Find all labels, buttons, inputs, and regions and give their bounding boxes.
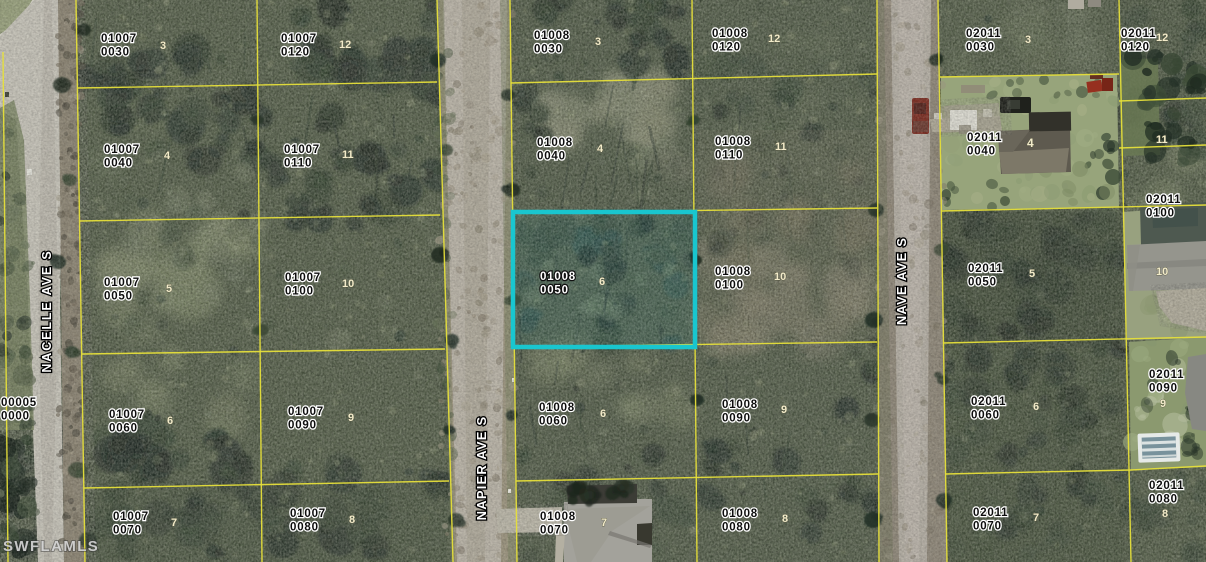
svg-text:9: 9 (781, 404, 787, 416)
svg-text:4: 4 (597, 143, 604, 155)
svg-text:NAPIER AVE S: NAPIER AVE S (474, 416, 489, 521)
svg-text:NACELLE AVE S: NACELLE AVE S (40, 249, 54, 372)
svg-text:11: 11 (342, 149, 354, 161)
svg-text:10: 10 (1156, 266, 1168, 278)
svg-text:6: 6 (600, 408, 606, 420)
svg-text:9: 9 (1160, 398, 1166, 410)
svg-text:11: 11 (1156, 134, 1168, 146)
svg-text:7: 7 (601, 517, 607, 529)
svg-text:6: 6 (599, 276, 605, 288)
svg-text:4: 4 (164, 150, 171, 162)
svg-text:5: 5 (166, 283, 172, 295)
svg-text:6: 6 (167, 415, 173, 427)
svg-text:11: 11 (775, 141, 787, 153)
svg-text:8: 8 (349, 514, 355, 526)
svg-text:8: 8 (782, 513, 788, 525)
svg-text:SWFLAMLS: SWFLAMLS (3, 538, 99, 555)
svg-text:3: 3 (1025, 34, 1031, 46)
svg-text:6: 6 (1033, 401, 1039, 413)
svg-text:12: 12 (339, 39, 351, 51)
svg-text:10: 10 (342, 278, 354, 290)
svg-text:12: 12 (768, 33, 780, 45)
svg-text:3: 3 (595, 36, 601, 48)
svg-text:4: 4 (1027, 136, 1034, 150)
svg-text:5: 5 (1029, 268, 1035, 280)
svg-text:9: 9 (348, 412, 354, 424)
svg-text:3: 3 (160, 40, 166, 52)
svg-text:8: 8 (1162, 508, 1168, 520)
svg-text:7: 7 (171, 517, 177, 529)
svg-text:NAVE AVE S: NAVE AVE S (894, 237, 909, 325)
svg-text:7: 7 (1033, 512, 1039, 524)
svg-text:12: 12 (1156, 32, 1168, 44)
svg-text:10: 10 (774, 271, 786, 283)
